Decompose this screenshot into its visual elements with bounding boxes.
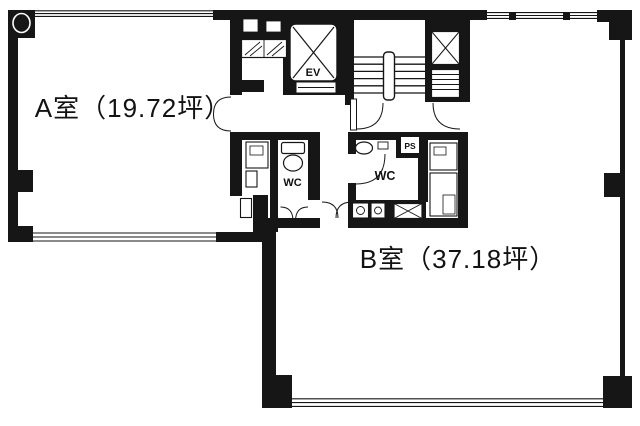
toilet-tank: [282, 143, 305, 154]
core-right-wall: [458, 132, 468, 228]
sinkroom-wc-wall: [270, 132, 278, 232]
wc-right-label: WC: [375, 169, 396, 183]
room-a-label: A室（19.72坪）: [35, 93, 231, 123]
wall-niche: [243, 19, 258, 32]
bottom-right-corner-column: [603, 376, 632, 408]
toilet-bowl-icon: [284, 155, 303, 171]
stair-handrail: [384, 52, 395, 100]
fixture: [246, 171, 257, 187]
utility-room: [430, 143, 457, 216]
wc-right-wall-upper-stub: [348, 140, 356, 154]
room-b-bottom-window: [292, 399, 603, 407]
room-a-bottom-wall-segment: [216, 232, 268, 242]
stair-door-arc: [357, 103, 384, 129]
toilet-icon: [371, 203, 385, 218]
pipe-space-label: PS: [404, 141, 416, 151]
stair-door-leaf: [351, 99, 357, 130]
pipe-niche: [241, 199, 252, 218]
elevator-label: EV: [306, 67, 321, 79]
room-a-right-wall-lower: [230, 132, 242, 196]
floor-plan-page: EV: [0, 0, 640, 426]
wc-left: WC: [282, 143, 305, 190]
room-b-left-wall: [262, 218, 276, 408]
washbasin-icon: [356, 142, 373, 154]
kitchen-bottom-wall: [240, 80, 264, 92]
wc-strip-wall: [308, 132, 320, 200]
elevator: EV: [290, 24, 338, 94]
corridor-to-room-b-door-arc: [433, 103, 460, 129]
floor-plan-svg: EV: [0, 0, 640, 426]
fixture: [378, 142, 388, 149]
stair-left-wall: [345, 17, 354, 105]
right-mid-column: [604, 173, 625, 197]
room-a-top-window: [35, 11, 213, 17]
stairs: [351, 52, 426, 130]
room-b-top-window: [487, 13, 597, 19]
right-wall: [620, 20, 625, 408]
left-mid-column: [8, 170, 33, 192]
room-a-bottom-left-column: [8, 226, 33, 242]
room-a-bottom-window: [33, 233, 216, 241]
junction-column: [253, 195, 268, 235]
room-b-label: B室（37.18坪）: [360, 244, 556, 274]
wc-left-label: WC: [283, 177, 301, 189]
left-wall: [8, 10, 18, 242]
wall-niche: [266, 21, 281, 32]
toilet-icon: [353, 203, 369, 218]
duct-shaft: [432, 32, 460, 98]
duct-louver: [432, 70, 460, 98]
